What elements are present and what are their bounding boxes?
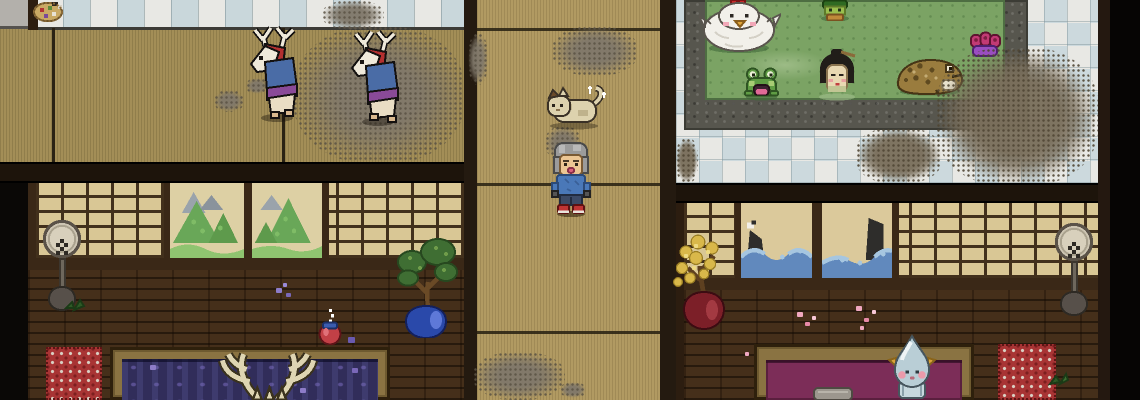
kappa[interactable] <box>817 0 853 21</box>
antlered-spirit[interactable] <box>198 351 338 400</box>
shoji-divider <box>892 203 899 278</box>
void-left <box>0 183 28 400</box>
bonsai-plant <box>396 234 458 338</box>
petal <box>352 368 358 373</box>
petal <box>276 288 282 293</box>
petal <box>805 322 810 326</box>
leaf-sprig <box>64 296 86 312</box>
leaf-sprig <box>1048 368 1070 388</box>
petal <box>286 293 291 297</box>
game-viewport <box>0 0 1140 400</box>
petal <box>348 337 355 343</box>
grime-patch <box>322 0 384 30</box>
petal <box>745 352 749 356</box>
bath-mat <box>46 347 102 400</box>
wall-beam <box>0 162 464 183</box>
shoji-divider <box>244 183 252 258</box>
wave-painting <box>741 203 812 278</box>
petal <box>300 388 306 393</box>
grime-patch <box>560 382 586 398</box>
petal <box>812 316 816 320</box>
cat[interactable] <box>542 84 610 130</box>
petal <box>150 365 156 370</box>
right-wall-frame <box>1098 0 1110 400</box>
chicken-spirit[interactable] <box>699 0 781 54</box>
grime-patch <box>676 138 698 183</box>
petal <box>797 312 803 317</box>
corridor-right-wall <box>660 0 676 400</box>
room-left-pillar <box>28 183 36 270</box>
grime-patch <box>552 26 638 76</box>
wave-painting <box>822 203 892 278</box>
sake-jug[interactable] <box>313 309 347 345</box>
bucket[interactable] <box>812 386 854 400</box>
grime-patch <box>936 48 1098 185</box>
shoji-divider <box>164 183 170 258</box>
bathing-woman[interactable] <box>817 49 857 101</box>
deer-spirit[interactable] <box>247 26 307 122</box>
wall-beam <box>676 183 1098 203</box>
void-right <box>1110 0 1140 400</box>
deer-spirit[interactable] <box>348 30 408 126</box>
frog[interactable] <box>744 67 779 101</box>
petal <box>872 310 876 314</box>
shoji-divider <box>812 203 822 278</box>
grime-patch <box>473 352 565 400</box>
shoji-divider <box>322 183 329 258</box>
basket[interactable] <box>32 0 64 22</box>
drop-spirit[interactable] <box>885 334 939 400</box>
tatami-seam <box>52 28 55 163</box>
grime-patch <box>856 128 942 183</box>
grime-patch <box>468 33 488 85</box>
petal <box>283 283 287 287</box>
petal <box>860 326 864 330</box>
standing-fan <box>1054 222 1094 316</box>
mountain-painting <box>170 183 244 258</box>
player-character[interactable] <box>549 141 593 217</box>
petal <box>856 306 862 311</box>
golden-tree <box>672 228 744 336</box>
hall-gray-wall <box>0 0 30 29</box>
floor-seam <box>477 331 660 334</box>
mountain-painting <box>252 183 322 258</box>
shoji-rail <box>684 278 1098 290</box>
petal <box>864 318 869 322</box>
grime-patch <box>214 90 244 112</box>
